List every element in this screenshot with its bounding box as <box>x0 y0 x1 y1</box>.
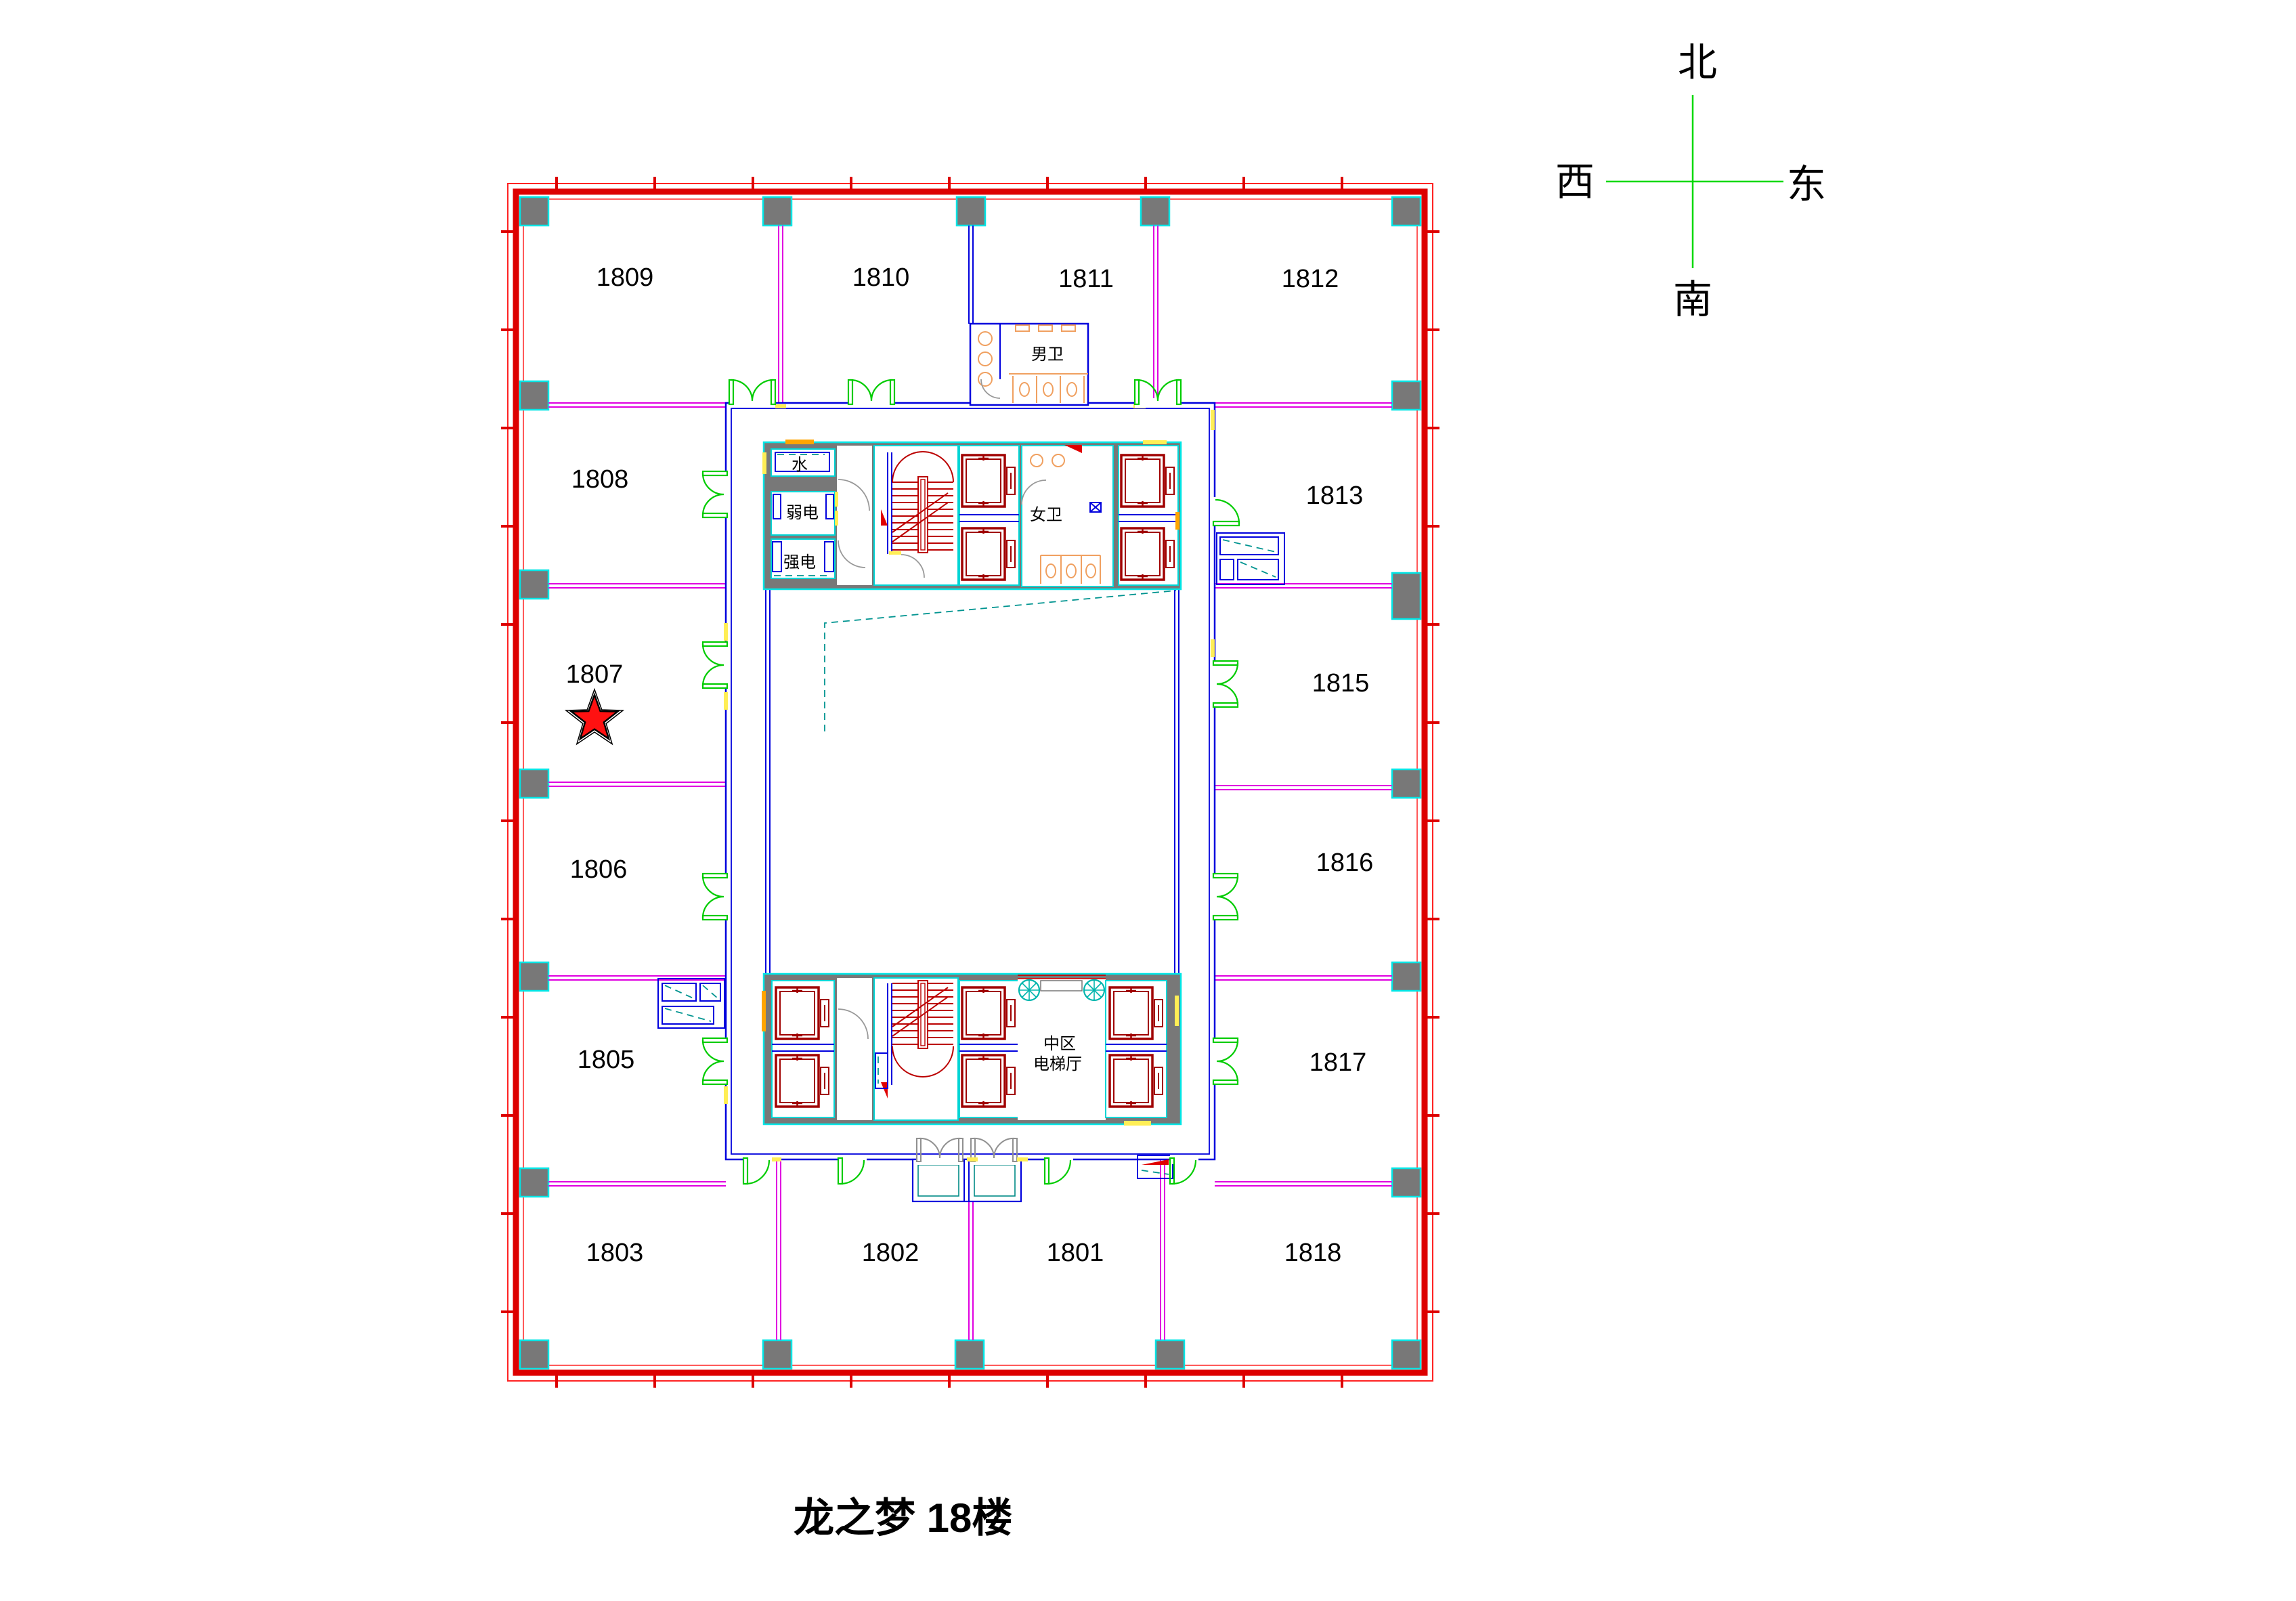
staircase-south <box>874 978 958 1120</box>
room-region-1807 <box>535 589 724 782</box>
elevator-bank-south-center <box>959 981 1019 1117</box>
atrium-dashed-line <box>825 591 1176 731</box>
water-meter-room: 水 <box>771 449 835 476</box>
vestibule-door <box>971 1138 1017 1165</box>
womens-toilet: 女卫 <box>1022 446 1113 586</box>
compass-east-label: 东 <box>1787 163 1826 207</box>
room-region-1803 <box>535 1187 775 1361</box>
room-region-1817 <box>1215 981 1418 1181</box>
elevator-bank-south-west <box>772 981 834 1117</box>
weak-electric-label: 弱电 <box>786 504 819 522</box>
room-label-1805: 1805 <box>578 1046 635 1074</box>
page-title: 龙之梦 18楼 <box>794 1495 1012 1541</box>
weak-electric-room: 弱电 <box>771 492 835 535</box>
room-region-1809 <box>535 210 724 402</box>
room-region-1801 <box>975 1185 1161 1361</box>
room-region-1805 <box>535 981 724 1181</box>
strong-electric-room: 强电 <box>771 539 835 578</box>
compass-south-label: 南 <box>1673 278 1712 322</box>
room-region-1802 <box>783 1185 969 1361</box>
room-label-1808: 1808 <box>571 465 629 494</box>
compass-cross-lines <box>1606 95 1783 268</box>
room-region-1818 <box>1165 1187 1418 1361</box>
womens-toilet-label: 女卫 <box>1030 506 1062 524</box>
vestibule-door <box>917 1138 963 1165</box>
elevator-hall-label-line1: 中区 <box>1043 1035 1076 1053</box>
room-label-1813: 1813 <box>1306 482 1364 510</box>
room-label-1803: 1803 <box>586 1239 644 1267</box>
room-label-1812: 1812 <box>1282 265 1339 293</box>
door-room-1809 <box>729 380 775 408</box>
room-label-1807: 1807 <box>566 660 624 689</box>
room-region-1806 <box>535 787 724 975</box>
central-elevator-hall: 中区 电梯厅 <box>1018 975 1106 1120</box>
room-region-1808 <box>535 408 724 583</box>
elevator-bank-north-east <box>1119 446 1178 585</box>
core-hallway-north <box>837 446 872 585</box>
room-label-1802: 1802 <box>862 1239 919 1267</box>
room-label-1818: 1818 <box>1284 1239 1342 1267</box>
compass-west-label: 西 <box>1555 160 1595 204</box>
elevator-bank-south-east <box>1106 981 1167 1117</box>
door-room-1803 <box>743 1155 772 1184</box>
plant-icon <box>1019 980 1039 1000</box>
room-label-1817: 1817 <box>1309 1048 1367 1077</box>
elevator-hall-label-line2: 电梯厅 <box>1033 1055 1082 1073</box>
door-room-1801 <box>1045 1155 1073 1184</box>
compass: 北 西 东 南 <box>1555 41 1826 322</box>
room-label-1809: 1809 <box>597 263 654 292</box>
atrium-void <box>766 589 1179 974</box>
room-region-1810 <box>783 210 968 402</box>
staircase-north <box>874 446 958 585</box>
room-label-1801: 1801 <box>1047 1239 1104 1267</box>
plant-icon <box>1084 980 1104 1000</box>
room-region-1812 <box>1158 210 1418 402</box>
compass-north-label: 北 <box>1678 41 1717 85</box>
room-label-1816: 1816 <box>1316 849 1374 877</box>
room-label-1811: 1811 <box>1058 265 1114 293</box>
core-south-block: 中区 电梯厅 <box>762 974 1181 1126</box>
water-room-label: 水 <box>792 456 808 474</box>
room-label-1810: 1810 <box>852 263 910 292</box>
room-region-1811 <box>974 210 1153 402</box>
core-north-block: 水 弱电 强电 <box>762 440 1181 589</box>
room-region-1816 <box>1215 790 1418 975</box>
core-hallway-south <box>837 978 872 1120</box>
door-room-1802 <box>838 1155 867 1184</box>
door-room-1818 <box>1170 1155 1198 1184</box>
elevator-bank-north-west <box>959 446 1019 585</box>
floorplan-page: 水 弱电 强电 <box>0 0 2296 1601</box>
room-label-1815: 1815 <box>1312 669 1370 698</box>
room-label-1806: 1806 <box>570 855 628 884</box>
strong-electric-label: 强电 <box>783 553 816 572</box>
